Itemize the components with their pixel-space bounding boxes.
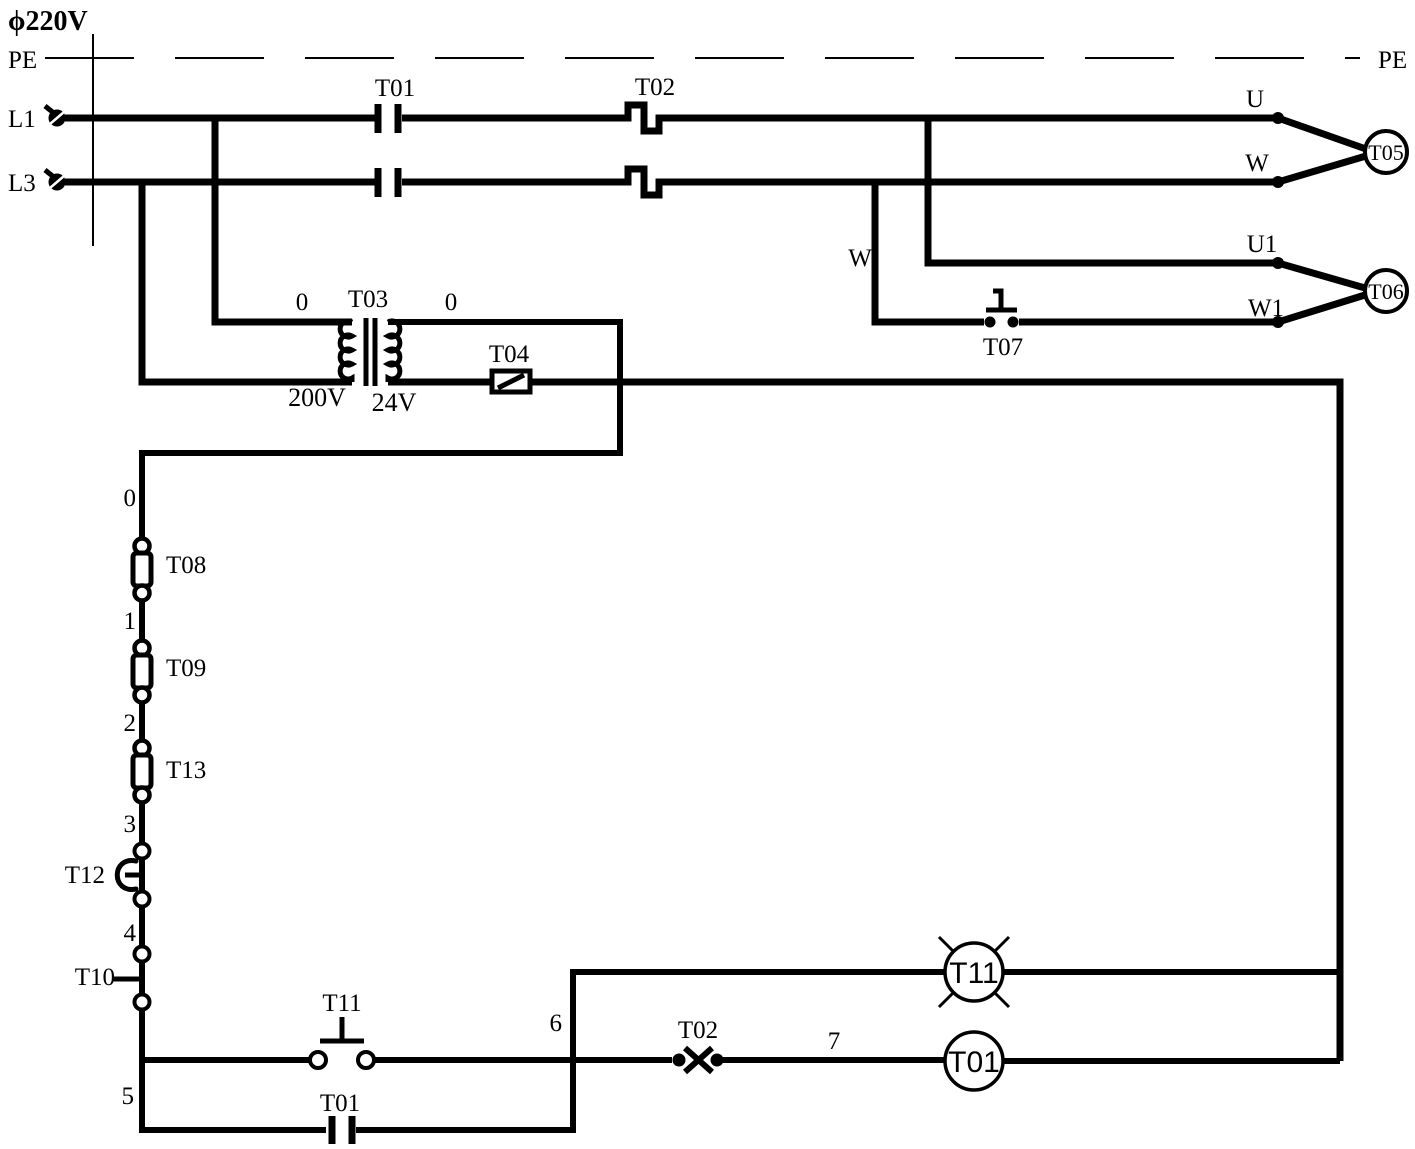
motor-t05-label: T05 (1368, 140, 1403, 165)
lamp-t11: T11 (939, 937, 1009, 1007)
motor-t06: T06 (1272, 257, 1407, 328)
fuse-body (133, 755, 151, 788)
nc-contact-t02: T02 (673, 1017, 724, 1072)
primary-winding (340, 321, 352, 382)
hold-contact-t01: T01 (320, 1090, 360, 1144)
node-label-0: 0 (124, 485, 137, 512)
node-label-4: 4 (124, 920, 137, 947)
start-button-t11: T11 (310, 990, 374, 1068)
fuse-t04-label: T04 (489, 341, 530, 368)
junction-dot (1272, 176, 1284, 188)
fuse-t08-label: T08 (166, 552, 206, 579)
motor-t05-leads (1278, 118, 1366, 182)
supply-voltage-label: ϕ220V (8, 6, 88, 37)
secondary-winding (388, 321, 400, 382)
node-label-1: 1 (124, 608, 137, 635)
node-label-0-right: 0 (445, 289, 458, 316)
node-label-5: 5 (122, 1083, 135, 1110)
fuse-terminal (135, 586, 150, 601)
lamp-t11-label: T11 (949, 957, 998, 990)
node-label-2: 2 (124, 710, 137, 737)
fuse-t13: T13 (133, 741, 206, 803)
contact-dot (711, 1054, 724, 1067)
phase-u-label: U (1246, 86, 1264, 113)
l1-phase-wire (65, 105, 1278, 322)
overload-t02-label: T02 (635, 74, 675, 101)
l1-label: L1 (8, 106, 36, 133)
estop-t12-label: T12 (65, 862, 105, 889)
pe-label-left: PE (8, 47, 37, 74)
coil-t01: T01 (945, 1032, 1003, 1090)
pe-bus (45, 34, 1360, 246)
contact-dot (1008, 317, 1019, 328)
phase-u1-label: U1 (1247, 231, 1278, 258)
contact-dot (673, 1054, 686, 1067)
nc-contact-t02-label: T02 (678, 1017, 718, 1044)
contact-terminal (135, 947, 150, 962)
switch-t10-label: T10 (75, 964, 115, 991)
fuse-t09: T09 (133, 641, 206, 703)
primary-voltage-label: 200V (288, 383, 346, 412)
fuse-t13-label: T13 (166, 757, 206, 784)
contact-dot (985, 317, 996, 328)
motor-t05: T05 (1272, 112, 1407, 188)
pushbutton-t07-label: T07 (983, 334, 1023, 361)
hold-contact-t01-label: T01 (320, 1090, 360, 1117)
contact-terminal (135, 844, 150, 859)
estop-t12: T12 (65, 844, 150, 907)
motor-t06-leads (1278, 263, 1365, 322)
fuse-t04: T04 (489, 341, 530, 392)
contact-bars (378, 104, 398, 197)
transformer-name-label: T03 (348, 286, 388, 313)
contact-terminal (310, 1052, 326, 1068)
start-button-t11-label: T11 (322, 990, 361, 1017)
wiring-diagram: ϕ220V PE PE L1 L3 T01 T02 U W U1 W1 W T0… (0, 0, 1415, 1149)
fuse-body (133, 553, 151, 586)
schematic-canvas: ϕ220V PE PE L1 L3 T01 T02 U W U1 W1 W T0… (0, 0, 1415, 1149)
l3-label: L3 (8, 170, 36, 197)
l1-terminal-icon (45, 106, 66, 127)
pushbutton-t07: T07 (983, 291, 1023, 361)
button-actuator (986, 291, 1017, 310)
fuse-t09-label: T09 (166, 655, 206, 682)
fuse-terminal (135, 688, 150, 703)
transformer-t03: 0 T03 0 200V 24V (288, 286, 457, 417)
junction-dot (1272, 112, 1284, 124)
phase-w-label: W (1245, 150, 1269, 177)
contact-terminal (135, 995, 150, 1010)
branch-w-label: W (848, 245, 872, 272)
button-actuator (320, 1017, 364, 1041)
secondary-bottom-and-right-rail (388, 382, 1340, 1061)
main-contact-label: T01 (375, 75, 415, 102)
node-label-0-left: 0 (296, 289, 309, 316)
switch-t10: T10 (75, 947, 150, 1010)
l3-phase-wire (65, 169, 1278, 382)
contact-terminal (358, 1052, 374, 1068)
junction-dot (1272, 316, 1284, 328)
node-label-6: 6 (550, 1010, 563, 1037)
cross-mark (685, 1048, 712, 1072)
node-label-7: 7 (828, 1028, 841, 1055)
contact-terminal (135, 892, 150, 907)
fuse-t08: T08 (133, 539, 206, 601)
contact-bars (332, 1116, 352, 1144)
motor-t06-label: T06 (1368, 279, 1403, 304)
l3-terminal-icon (45, 170, 66, 191)
junction-dot (1272, 257, 1284, 269)
fuse-body (133, 655, 151, 688)
node-label-3: 3 (124, 811, 137, 838)
coil-t01-label: T01 (948, 1046, 1000, 1079)
fuse-terminal (135, 788, 150, 803)
pe-label-right: PE (1378, 47, 1407, 74)
secondary-voltage-label: 24V (372, 388, 417, 417)
